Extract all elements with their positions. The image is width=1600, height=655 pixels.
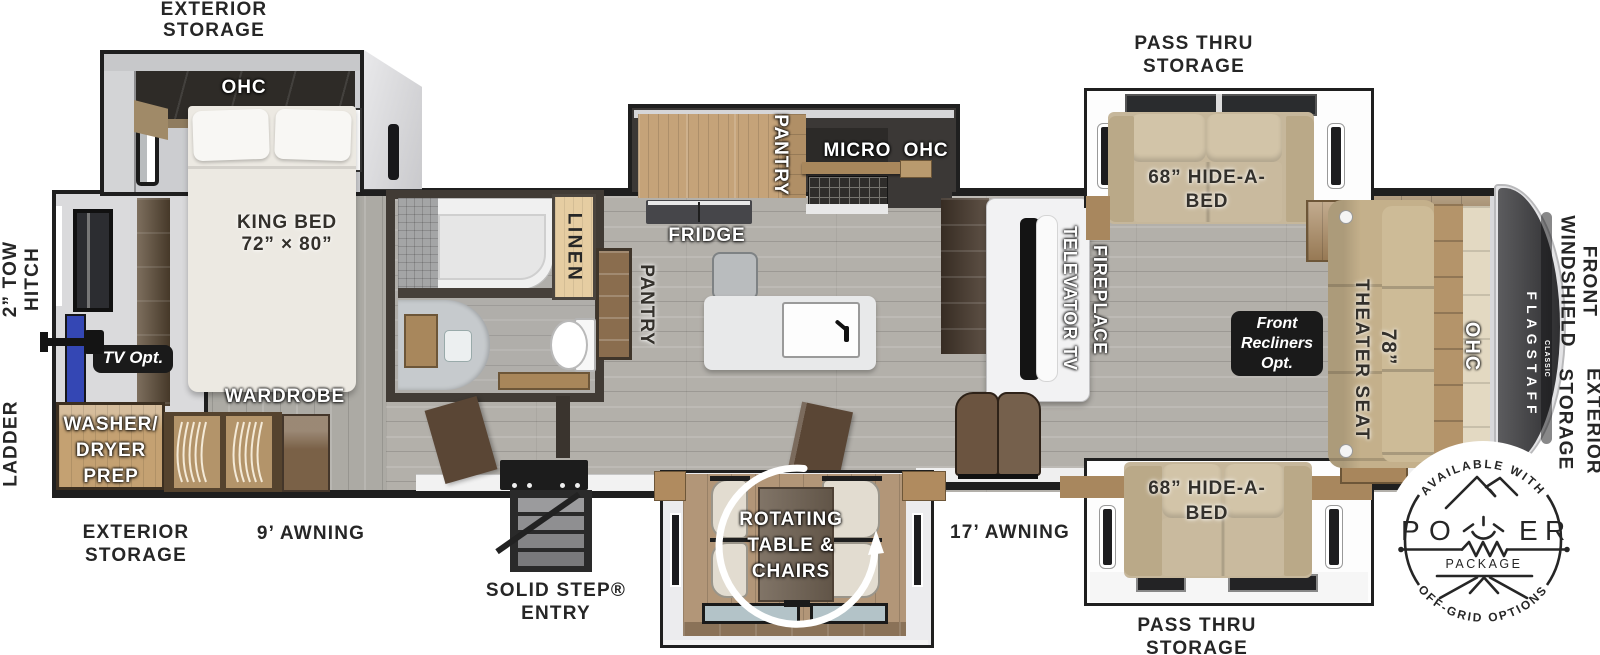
svg-text:E: E bbox=[1519, 515, 1538, 546]
svg-text:PACKAGE: PACKAGE bbox=[1445, 557, 1522, 571]
svg-text:O: O bbox=[1429, 515, 1451, 546]
svg-text:R: R bbox=[1545, 515, 1565, 546]
svg-text:P: P bbox=[1401, 515, 1420, 546]
